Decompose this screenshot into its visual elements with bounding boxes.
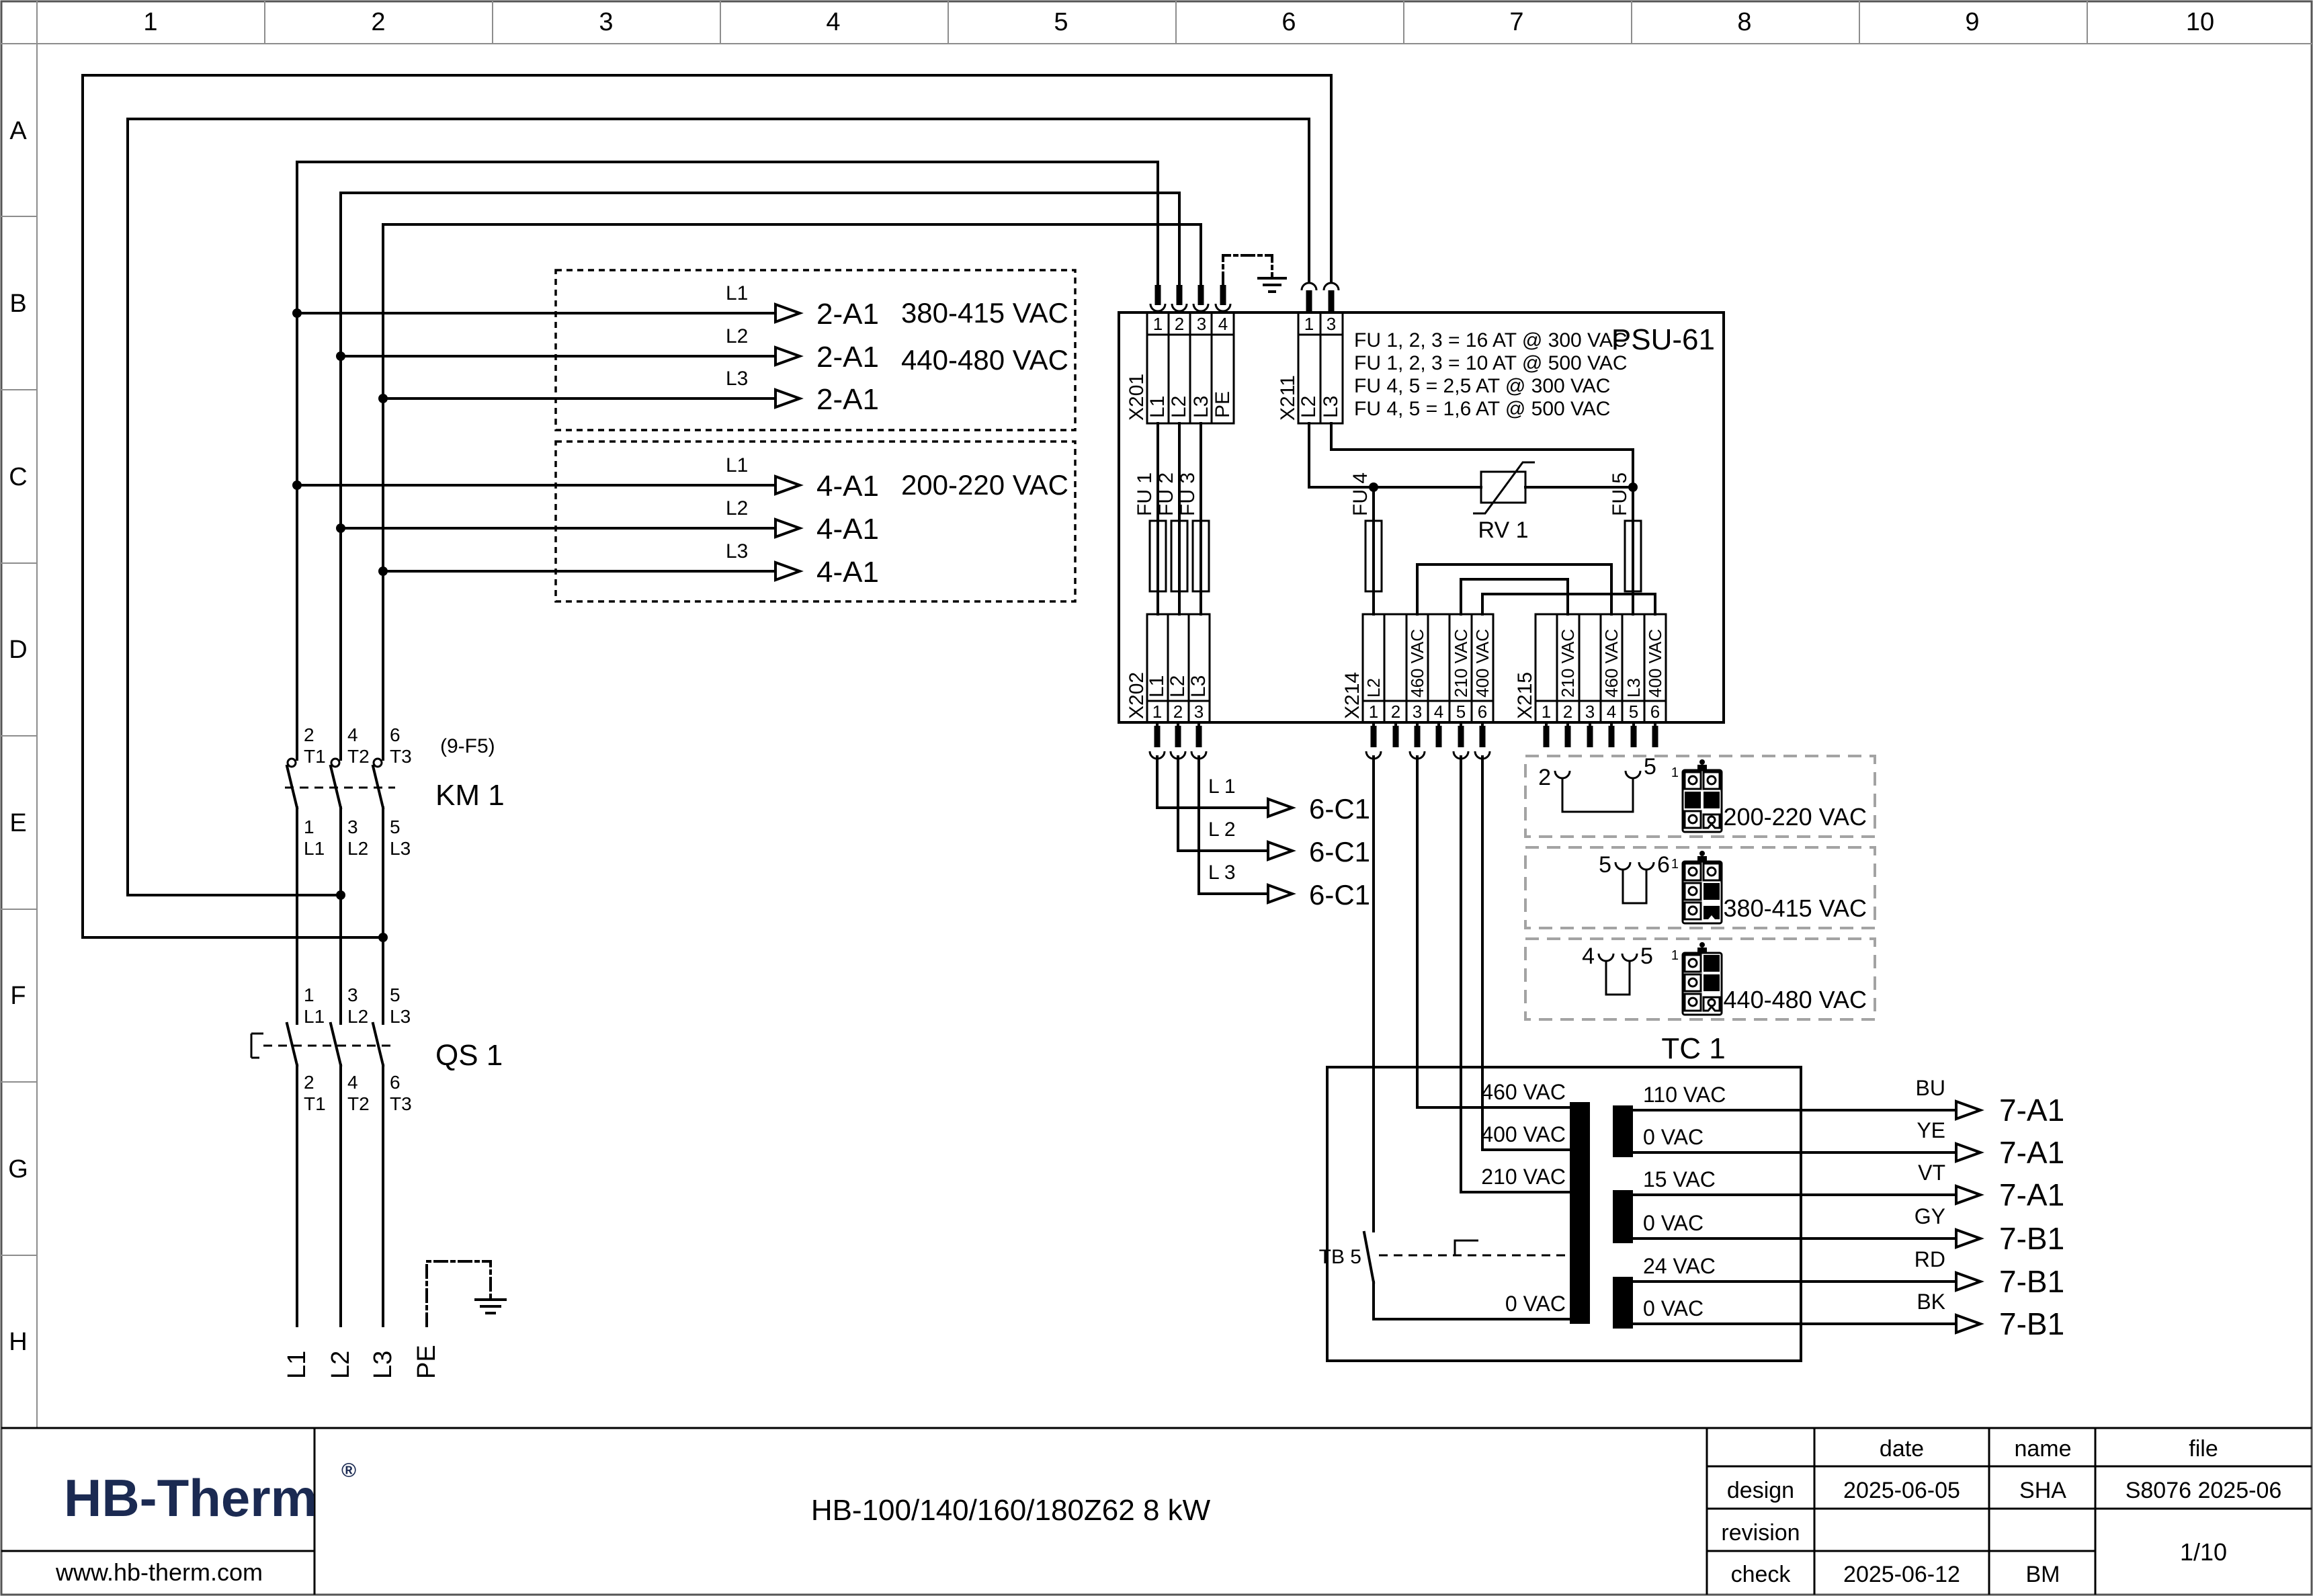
grid-row-label: E xyxy=(9,809,26,837)
pin-label: 2 xyxy=(304,724,314,745)
terminal-number: 2 xyxy=(1173,702,1183,722)
secondary-winding xyxy=(1613,1190,1633,1243)
grid-row-label: B xyxy=(9,290,26,318)
mains-label-l1: L1 xyxy=(283,1351,311,1379)
feed-target: 4-A1 xyxy=(816,513,879,546)
arrow-icon xyxy=(1268,842,1292,859)
pin-label: L1 xyxy=(304,838,325,859)
arrow-icon xyxy=(775,562,800,580)
grid-column-label: 9 xyxy=(1965,8,1979,36)
tb5-label: TB 5 xyxy=(1319,1246,1361,1268)
pin-label: T1 xyxy=(304,746,326,767)
terminal-strip-x214: 1 2 3 4 5 6 L2 460 VAC 210 VAC 400 VAC X… xyxy=(1341,614,1493,722)
pin-label: L1 xyxy=(304,1006,325,1027)
schematic-sheet: 1 2 3 4 5 6 7 8 9 10 A B C D E F G H 2 xyxy=(0,0,2313,1596)
terminal-number: 4 xyxy=(1434,702,1443,722)
feed-target: 2-A1 xyxy=(816,383,879,416)
primary-tap-label: 0 VAC xyxy=(1505,1292,1566,1316)
km1-cross-reference: (9-F5) xyxy=(440,735,495,757)
wire-color-label: YE xyxy=(1917,1118,1945,1142)
grid-column-label: 8 xyxy=(1737,8,1751,36)
qs1-contact-blades xyxy=(287,1023,383,1065)
jumper-pin: 5 xyxy=(1644,754,1656,780)
primary-tap-label: 210 VAC xyxy=(1481,1165,1566,1189)
pin-label: 5 xyxy=(390,816,401,837)
tc1-primary-feed-wires xyxy=(1374,757,1570,1231)
terminal-strip-name: X211 xyxy=(1277,375,1299,421)
terminal-number: 3 xyxy=(1194,702,1204,722)
connector-icon xyxy=(1683,851,1722,923)
design-name: SHA xyxy=(2019,1478,2066,1503)
mains-labels: L1 L2 L3 PE xyxy=(283,1345,441,1379)
jumper-pin: 5 xyxy=(1599,852,1611,878)
fuse-note: FU 4, 5 = 1,6 AT @ 500 VAC xyxy=(1354,398,1610,420)
grid-column-label: 2 xyxy=(371,8,385,36)
pin-label: T3 xyxy=(390,746,412,767)
terminal-label: L2 xyxy=(1298,396,1320,418)
voltage-range: 200-220 VAC xyxy=(901,469,1068,501)
terminal-label: 210 VAC xyxy=(1558,629,1578,698)
contact-terminal-icon xyxy=(331,759,339,767)
phase-label: L1 xyxy=(726,454,748,476)
arrow-icon xyxy=(775,519,800,537)
control-feed-wires xyxy=(1309,423,1633,614)
row-label-design: design xyxy=(1727,1478,1794,1503)
arrow-icon xyxy=(1956,1315,1980,1333)
grid-row-label: F xyxy=(10,982,26,1010)
title-block: HB-Therm ® www.hb-therm.com HB-100/140/1… xyxy=(1,1428,2312,1595)
fuse-note: FU 4, 5 = 2,5 AT @ 300 VAC xyxy=(1354,375,1610,397)
config-box-200: 2 5 1 200-220 VAC xyxy=(1525,754,1875,837)
terminal-strip-name: X202 xyxy=(1126,672,1148,719)
jumper-pin: 4 xyxy=(1582,943,1595,969)
plug-pin-icons-bottom xyxy=(1150,722,1658,759)
pin-label: T2 xyxy=(347,746,370,767)
company-website: www.hb-therm.com xyxy=(55,1558,263,1586)
voltage-range: 440-480 VAC xyxy=(1724,986,1867,1013)
feed-branch-wires xyxy=(297,313,775,571)
contactor-km1: 2 T1 4 T2 6 T3 1 L1 3 L2 5 L3 (9-F5) KM … xyxy=(285,724,505,859)
feed-box-lv: L1 L2 L3 4-A1 4-A1 4-A1 200-220 VAC xyxy=(556,442,1075,601)
config-box-440: 4 5 1 440-480 VAC xyxy=(1525,939,1875,1019)
primary-winding xyxy=(1570,1102,1590,1324)
pin-label: 2 xyxy=(304,1072,314,1093)
terminal-strip-name: X214 xyxy=(1341,672,1363,719)
grid-column-label: 7 xyxy=(1509,8,1523,36)
column-header-name: name xyxy=(2014,1436,2071,1462)
terminal-label: 400 VAC xyxy=(1472,629,1492,698)
secondary-tap-label: 0 VAC xyxy=(1643,1211,1704,1235)
terminal-label: L1 xyxy=(1146,675,1168,698)
grid-row-label: G xyxy=(8,1155,28,1183)
secondary-winding xyxy=(1613,1277,1633,1329)
fuse-note: FU 1, 2, 3 = 10 AT @ 500 VAC xyxy=(1354,352,1628,374)
terminal-number: 4 xyxy=(1218,314,1228,334)
terminal-label: PE xyxy=(1212,391,1234,418)
feed-target: 4-A1 xyxy=(816,556,879,589)
feed-target: 7-B1 xyxy=(1999,1221,2064,1256)
fuse-label: FU 2 xyxy=(1155,472,1177,516)
wire-color-label: BK xyxy=(1917,1290,1945,1314)
terminal-number: 2 xyxy=(1391,702,1400,722)
check-name: BM xyxy=(2026,1562,2060,1587)
secondary-tap-label: 0 VAC xyxy=(1643,1125,1704,1149)
secondary-tap-label: 0 VAC xyxy=(1643,1296,1704,1320)
terminal-strip-x211: 1 3 L2 L3 X211 xyxy=(1277,312,1343,423)
phase-label: L 3 xyxy=(1208,862,1236,884)
feed-target: 7-B1 xyxy=(1999,1306,2064,1341)
terminal-number: 1 xyxy=(1369,702,1378,722)
terminal-number: 3 xyxy=(1327,314,1336,334)
arrow-icon xyxy=(1956,1230,1980,1247)
contact-terminal-icon xyxy=(374,759,382,767)
grid-column-label: 10 xyxy=(2186,8,2214,36)
feed-target: 7-A1 xyxy=(1999,1135,2064,1170)
pin-label: T3 xyxy=(390,1093,412,1114)
arrow-icon xyxy=(775,304,800,322)
terminal-number: 1 xyxy=(1542,702,1551,722)
pin-label: 6 xyxy=(390,724,401,745)
terminal-label: L3 xyxy=(1320,396,1342,418)
pin-label: 1 xyxy=(304,816,314,837)
arrow-icon xyxy=(775,476,800,494)
ground-symbol xyxy=(1259,278,1286,292)
phase-label: L 1 xyxy=(1208,775,1236,798)
arrow-icon xyxy=(1956,1101,1980,1119)
check-date: 2025-06-12 xyxy=(1843,1562,1960,1587)
feed-target: 6-C1 xyxy=(1309,879,1370,911)
grid-column-label: 6 xyxy=(1281,8,1296,36)
primary-tap-label: 460 VAC xyxy=(1481,1080,1566,1104)
connector-icon xyxy=(1683,942,1722,1015)
terminal-number: 3 xyxy=(1413,702,1422,722)
pin-label: 4 xyxy=(347,724,358,745)
pin-label: L2 xyxy=(347,838,368,859)
varistor-label: RV 1 xyxy=(1478,517,1529,543)
terminal-number: 1 xyxy=(1304,314,1314,334)
jumper-pin: 6 xyxy=(1657,852,1670,878)
plug-pin-icons-top xyxy=(1150,283,1339,312)
terminal-number: 4 xyxy=(1607,702,1616,722)
terminal-label: L2 xyxy=(1363,678,1384,698)
terminal-number: 2 xyxy=(1563,702,1572,722)
terminal-label: 400 VAC xyxy=(1645,629,1665,698)
arrow-icon xyxy=(1956,1144,1980,1161)
column-header-date: date xyxy=(1880,1436,1924,1462)
fuse-label: FU 4 xyxy=(1349,472,1372,516)
secondary-winding xyxy=(1613,1105,1633,1157)
ground-symbol xyxy=(476,1300,505,1313)
pin-label: 3 xyxy=(347,816,358,837)
connector-pin1-label: 1 xyxy=(1671,765,1679,780)
feed-target: 7-A1 xyxy=(1999,1093,2064,1128)
transformer-tc1: TC 1 TB 5 460 VAC 400 VAC 210 VAC 0 VAC … xyxy=(1319,1032,1801,1361)
varistor-rv1: RV 1 xyxy=(1473,462,1535,543)
terminal-strip-name: X201 xyxy=(1126,374,1148,421)
drawing-title: HB-100/140/160/180Z62 8 kW xyxy=(811,1494,1211,1527)
pin-label: L2 xyxy=(347,1006,368,1027)
wire-l2-x211 xyxy=(128,119,1309,895)
wire-l3 xyxy=(383,224,1201,1326)
terminal-strip-x215: 1 2 3 4 5 6 210 VAC 460 VAC L3 400 VAC X… xyxy=(1514,614,1666,722)
terminal-number: 5 xyxy=(1629,702,1638,722)
terminal-number: 6 xyxy=(1650,702,1660,722)
page-number: 1/10 xyxy=(2180,1538,2227,1566)
phase-label: L2 xyxy=(726,497,748,519)
wire-color-label: BU xyxy=(1916,1076,1945,1100)
fuses: FU 1 FU 2 FU 3 FU 4 FU 5 xyxy=(1134,472,1641,591)
switch-qs1: 1 L1 3 L2 5 L3 2 T1 4 T2 6 T3 QS 1 xyxy=(251,984,503,1114)
feed-target: 2-A1 xyxy=(816,341,879,374)
grid-column-label: 5 xyxy=(1054,8,1068,36)
phase-label: L 2 xyxy=(1208,818,1236,841)
arrow-icon xyxy=(775,347,800,365)
file-value: S8076 2025-06 xyxy=(2126,1478,2282,1503)
feed-box-lv-border xyxy=(556,442,1075,601)
phase-label: L3 xyxy=(726,540,748,562)
grid-row-ticks xyxy=(0,216,37,1255)
qs1-label: QS 1 xyxy=(435,1039,503,1072)
mains-label-l2: L2 xyxy=(327,1351,355,1379)
pin-label: 4 xyxy=(347,1072,358,1093)
wire-color-label: GY xyxy=(1915,1204,1945,1228)
grid-column-ticks xyxy=(265,0,2087,44)
primary-tap-label: 400 VAC xyxy=(1481,1122,1566,1146)
terminal-label: 460 VAC xyxy=(1601,629,1622,698)
jumper-pin: 2 xyxy=(1538,765,1551,790)
terminal-number: 3 xyxy=(1197,314,1206,334)
jumper-pin: 5 xyxy=(1640,943,1653,969)
arrow-icon xyxy=(1268,799,1292,816)
design-date: 2025-06-05 xyxy=(1843,1478,1960,1503)
arrow-icon xyxy=(1956,1186,1980,1204)
grid-row-label: D xyxy=(9,636,27,664)
pin-label: 5 xyxy=(390,984,401,1005)
fuse-label: FU 1 xyxy=(1134,472,1156,516)
qs1-handle-icon xyxy=(251,1034,263,1058)
terminal-label: L3 xyxy=(1190,396,1212,418)
terminal-strip-x201: 1 2 3 4 L1 L2 L3 PE X201 xyxy=(1126,312,1234,423)
pin-label: T1 xyxy=(304,1093,326,1114)
wire-color-label: RD xyxy=(1915,1247,1945,1271)
output-6c1: L 1 L 2 L 3 6-C1 6-C1 6-C1 xyxy=(1157,757,1370,911)
mains-label-l3: L3 xyxy=(369,1351,397,1379)
contact-terminal-icon xyxy=(288,759,296,767)
fuse-label: FU 3 xyxy=(1177,472,1199,516)
registered-mark: ® xyxy=(341,1460,356,1482)
row-label-check: check xyxy=(1731,1562,1792,1587)
feed-target: 4-A1 xyxy=(816,470,879,503)
pin-label: 1 xyxy=(304,984,314,1005)
wire-pe xyxy=(427,1261,491,1326)
column-header-file: file xyxy=(2189,1436,2218,1462)
terminal-number: 1 xyxy=(1153,314,1163,334)
secondary-tap-label: 110 VAC xyxy=(1643,1083,1726,1107)
feed-target: 6-C1 xyxy=(1309,836,1370,868)
pin-label: L3 xyxy=(390,838,411,859)
phase-label: L2 xyxy=(726,325,748,347)
km1-label: KM 1 xyxy=(435,779,505,812)
voltage-range: 440-480 VAC xyxy=(901,344,1068,376)
terminal-number: 2 xyxy=(1175,314,1184,334)
terminal-label: L3 xyxy=(1624,678,1644,698)
secondary-tap-label: 24 VAC xyxy=(1643,1254,1716,1278)
terminal-number: 5 xyxy=(1456,702,1466,722)
voltage-range: 380-415 VAC xyxy=(1724,894,1867,922)
config-box-380: 5 6 1 380-415 VAC xyxy=(1525,847,1875,928)
feed-target: 2-A1 xyxy=(816,298,879,331)
voltage-select-jumpers xyxy=(1417,564,1655,614)
terminal-label: L2 xyxy=(1168,396,1190,418)
wiring-diagram: 1 2 3 4 5 6 7 8 9 10 A B C D E F G H 2 xyxy=(0,0,2313,1596)
grid-column-label: 3 xyxy=(599,8,613,36)
terminal-strip-x202: 1 2 3 L1 L2 L3 X202 xyxy=(1126,614,1210,722)
pin-label: L3 xyxy=(390,1006,411,1027)
terminal-label: 210 VAC xyxy=(1451,629,1471,698)
psu-unit: PSU-61 FU 1, 2, 3 = 16 AT @ 300 VAC FU 1… xyxy=(1119,255,1724,722)
arrow-icon xyxy=(1956,1273,1980,1290)
terminal-label: L2 xyxy=(1167,675,1189,698)
phase-label: L1 xyxy=(726,282,748,304)
terminal-number: 1 xyxy=(1152,702,1162,722)
secondary-tap-label: 15 VAC xyxy=(1643,1167,1716,1191)
terminal-label: 460 VAC xyxy=(1407,629,1427,698)
terminal-label: L3 xyxy=(1187,675,1210,698)
pin-label: 6 xyxy=(390,1072,401,1093)
pin-label: T2 xyxy=(347,1093,370,1114)
grid-row-label: C xyxy=(9,463,27,491)
feed-box-hv: L1 L2 L3 2-A1 2-A1 2-A1 380-415 VAC 440-… xyxy=(556,270,1075,430)
terminal-strip-name: X215 xyxy=(1514,672,1536,719)
company-logo: HB-Therm xyxy=(64,1468,317,1527)
fuse-label: FU 5 xyxy=(1609,472,1631,516)
wire-color-label: VT xyxy=(1918,1161,1945,1185)
feed-target: 7-A1 xyxy=(1999,1177,2064,1212)
tb5-link-tick xyxy=(1455,1241,1478,1255)
connector-icon xyxy=(1683,759,1722,832)
arrow-icon xyxy=(775,390,800,407)
voltage-range: 380-415 VAC xyxy=(901,297,1068,329)
feed-target: 7-B1 xyxy=(1999,1264,2064,1299)
connector-pin1-label: 1 xyxy=(1671,857,1679,872)
terminal-label: L1 xyxy=(1146,396,1169,418)
grid-row-label: A xyxy=(9,117,27,145)
terminal-number: 6 xyxy=(1478,702,1487,722)
terminal-number: 3 xyxy=(1585,702,1595,722)
grid-column-label: 1 xyxy=(143,8,157,36)
arrow-icon xyxy=(1268,885,1292,902)
row-label-revision: revision xyxy=(1721,1520,1800,1546)
voltage-range: 200-220 VAC xyxy=(1724,803,1867,831)
mains-label-pe: PE xyxy=(413,1345,441,1379)
pin-label: 3 xyxy=(347,984,358,1005)
wire-pe-internal xyxy=(1223,255,1272,285)
connector-pin1-label: 1 xyxy=(1671,948,1679,963)
grid-column-label: 4 xyxy=(826,8,840,36)
grid-row-label: H xyxy=(9,1328,27,1356)
feed-target: 6-C1 xyxy=(1309,793,1370,825)
phase-label: L3 xyxy=(726,368,748,390)
fuse-note: FU 1, 2, 3 = 16 AT @ 300 VAC xyxy=(1354,329,1628,351)
tc1-label: TC 1 xyxy=(1661,1032,1725,1065)
